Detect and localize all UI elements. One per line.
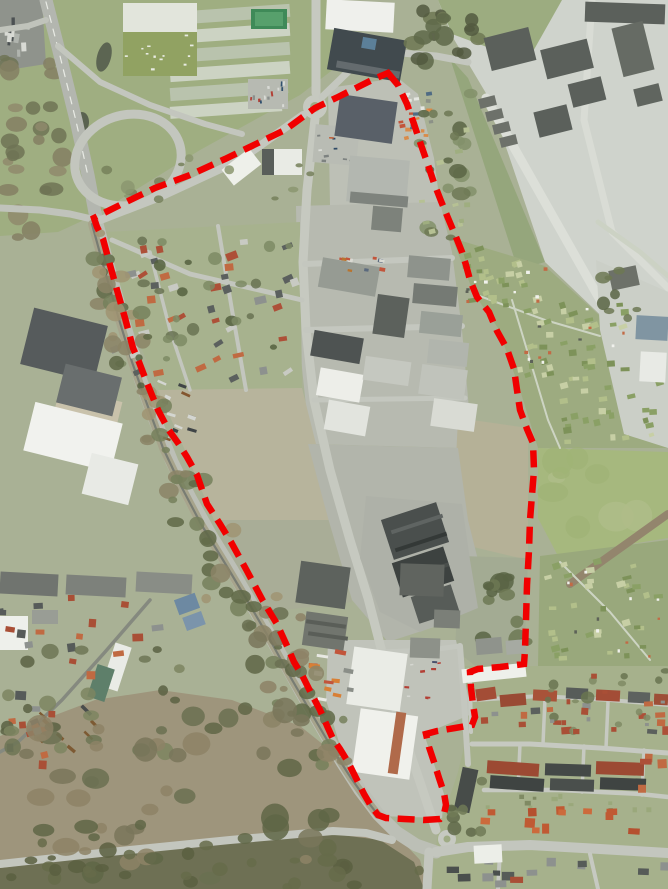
res-street — [606, 702, 608, 748]
lobe-dark-building — [295, 561, 350, 610]
junction-island — [444, 836, 451, 843]
lobe-white-hall — [346, 647, 408, 712]
lobe-east-building — [410, 637, 441, 658]
row-block — [654, 694, 668, 706]
rowhouse-long — [550, 778, 594, 792]
lobe-east-building — [399, 563, 444, 597]
green-roof-hall — [123, 32, 197, 76]
building-east-white — [639, 351, 667, 382]
rowhouse-long — [545, 763, 591, 777]
lobe-sheds — [302, 611, 348, 651]
big-store — [334, 94, 397, 144]
sports-court-inner — [255, 12, 283, 26]
aerial-photo-canvas — [0, 0, 668, 889]
white-hall-top — [325, 0, 394, 33]
lobe-white-hall — [352, 708, 418, 779]
industrial-building — [427, 339, 469, 367]
lobe-east-building — [434, 610, 461, 629]
workshop — [0, 571, 59, 596]
industrial-building — [371, 206, 403, 233]
white-building-dark-part — [262, 149, 274, 175]
aerial-map — [0, 0, 668, 889]
barracks — [585, 2, 666, 25]
industrial-building — [419, 311, 463, 337]
building-east-blue — [635, 315, 668, 341]
flat-hall — [418, 364, 468, 400]
industrial-building — [407, 255, 451, 281]
industrial-building — [372, 294, 409, 338]
white-building-south — [474, 844, 503, 863]
roadside-building — [475, 637, 502, 655]
row-block — [596, 689, 621, 701]
res-street — [543, 698, 545, 744]
industrial-building — [412, 283, 458, 307]
workshop — [32, 610, 58, 624]
workshop — [66, 574, 127, 597]
road-south-stub — [427, 852, 429, 889]
row-block — [500, 693, 527, 707]
rowhouse-long — [596, 761, 644, 776]
workshop — [136, 572, 193, 595]
